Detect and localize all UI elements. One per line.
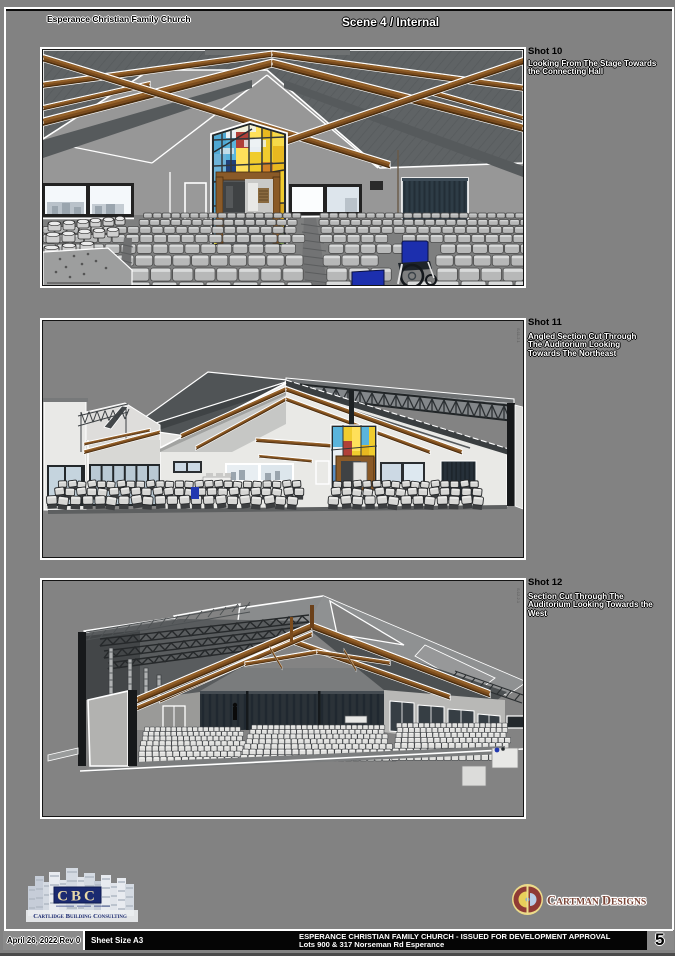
svg-text:CARTMAN DESIGNS: CARTMAN DESIGNS (547, 894, 646, 908)
svg-text:S:12-2.1: S:12-2.1 (516, 588, 521, 604)
svg-text:CBC: CBC (57, 889, 98, 905)
svg-text:CARTLIDGE BUILDING CONSULTING: CARTLIDGE BUILDING CONSULTING (33, 913, 127, 920)
svg-text:S:11-2.1: S:11-2.1 (516, 328, 521, 344)
